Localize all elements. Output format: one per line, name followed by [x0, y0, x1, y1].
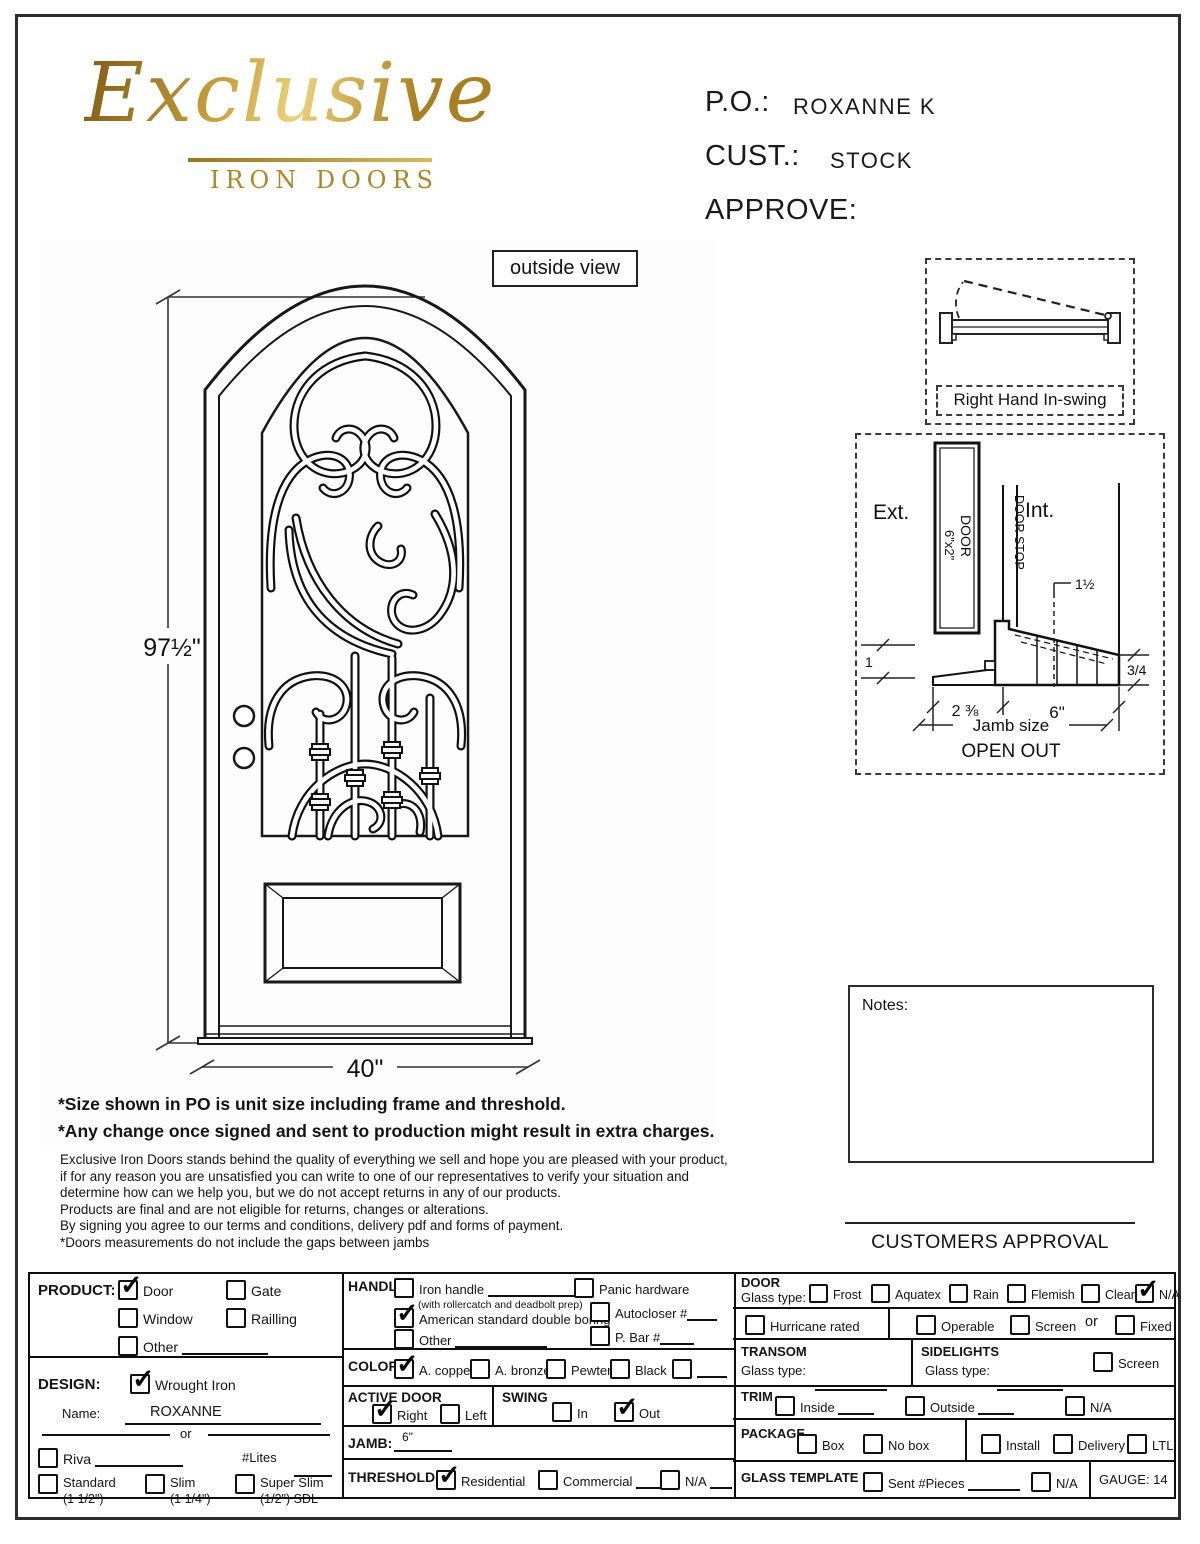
customers-approval-label: CUSTOMERS APPROVAL [845, 1231, 1135, 1254]
checkbox[interactable] [610, 1359, 630, 1379]
checkbox[interactable] [1081, 1284, 1100, 1303]
form-col-mid: HANDLE Iron handle (with rollercatch and… [342, 1274, 736, 1497]
handle-option-iron[interactable]: Iron handle [394, 1278, 584, 1298]
trim-inside-blank[interactable] [838, 1400, 874, 1415]
color-option-other[interactable] [672, 1359, 727, 1379]
active-swing-divider [492, 1387, 494, 1427]
open-out-label: OPEN OUT [961, 741, 1061, 762]
disclaimer-bold-1: *Size shown in PO is unit size including… [58, 1094, 566, 1115]
checkbox[interactable] [440, 1404, 460, 1424]
package-divider [965, 1420, 967, 1462]
raised-panel [265, 884, 460, 982]
jamb-label: JAMB: [348, 1435, 392, 1451]
profile-option-super-slim[interactable]: Super Slim(1/2") SDL [235, 1474, 324, 1506]
template-sent-option[interactable]: Sent #Pieces [863, 1472, 1020, 1492]
design-name-line[interactable] [125, 1410, 321, 1425]
checkbox[interactable] [672, 1359, 692, 1379]
checkbox[interactable] [660, 1470, 680, 1490]
hurricane-operable-section: Hurricane rated Operable Screen or Fixed [733, 1309, 1174, 1340]
product-section: PRODUCT: Door Gate Window Railling Other [30, 1274, 344, 1358]
glass-option-aquatex[interactable]: Aquatex [871, 1284, 941, 1303]
checkbox[interactable] [614, 1402, 634, 1422]
glass-type-label: Glass type: [741, 1290, 806, 1305]
glass-template-label: GLASS TEMPLATE [741, 1470, 858, 1485]
door-size-label: 6"x2" [942, 530, 957, 561]
logo-iron-doors: IRON DOORS [210, 166, 439, 194]
height-dimension [156, 290, 425, 1050]
threshold-section: THRESHOLD Residential Commercial N/A [342, 1460, 736, 1497]
checkbox[interactable] [38, 1448, 58, 1468]
trim-outside-blank[interactable] [978, 1400, 1014, 1415]
handle-option-panic[interactable]: Panic hardware [574, 1278, 689, 1298]
height-dim-text: 97½" [143, 634, 201, 662]
glass-option-clear[interactable]: Clear [1081, 1284, 1135, 1303]
ext-label: Ext. [873, 501, 909, 524]
design-section: DESIGN: Wrought Iron Name: ROXANNE or Ri… [30, 1358, 344, 1497]
handle-option-other[interactable]: Other [394, 1329, 547, 1349]
iron-handle-blank[interactable] [488, 1282, 584, 1297]
door-stop-label: DOOR STOP [1012, 495, 1026, 570]
checkbox[interactable] [470, 1359, 490, 1379]
checkbox[interactable] [394, 1278, 414, 1298]
product-option-door[interactable]: Door [118, 1280, 173, 1300]
form-col-right: DOOR Glass type: Frost Aquatex Rain Flem… [733, 1274, 1174, 1497]
trim-label: TRIM [741, 1389, 773, 1404]
logo-exclusive: Exclusive [84, 46, 496, 141]
trim-option-inside[interactable]: Inside [775, 1396, 874, 1416]
transom-sidelights-section: TRANSOM Glass type: SIDELIGHTS Glass typ… [733, 1340, 1174, 1387]
door-outer-frame [205, 286, 525, 1043]
door-drawing-area: outside view 97½" [40, 240, 716, 1145]
package-section: PACKAGE Box No box Install Delivery LTL [733, 1420, 1174, 1462]
checkbox[interactable] [130, 1374, 150, 1394]
threshold-na-blank[interactable] [710, 1474, 732, 1489]
door-glass-section: DOOR Glass type: Frost Aquatex Rain Flem… [733, 1274, 1174, 1309]
threshold-sill [198, 1026, 532, 1044]
glass-option-flemish[interactable]: Flemish [1007, 1284, 1075, 1303]
design-option-wrought-iron[interactable]: Wrought Iron [130, 1374, 236, 1394]
deadbolt-bore [234, 748, 254, 768]
jamb-section: JAMB: 6" [342, 1427, 736, 1460]
pieces-blank[interactable] [968, 1476, 1020, 1491]
color-option-copper[interactable]: A. copper [394, 1359, 475, 1379]
glass-option-na[interactable]: N/A [1135, 1284, 1180, 1303]
handle-option-pbar[interactable]: P. Bar # [590, 1326, 694, 1346]
pbar-blank[interactable] [660, 1330, 694, 1345]
template-na-option[interactable]: N/A [1031, 1472, 1078, 1492]
trim-section: TRIM Inside Outside N/A [733, 1387, 1174, 1420]
color-option-pewter[interactable]: Pewter [546, 1359, 611, 1379]
checkbox[interactable] [949, 1284, 968, 1303]
checkbox[interactable] [905, 1396, 925, 1416]
swing-diagram-box: Right Hand In-swing [925, 258, 1135, 425]
door-glass-label: DOOR [741, 1275, 780, 1290]
threshold-option-na[interactable]: N/A [660, 1470, 732, 1490]
threshold-option-commercial[interactable]: Commercial [538, 1470, 670, 1490]
checkbox[interactable] [916, 1315, 936, 1335]
dim-1: 1 [865, 654, 873, 670]
checkbox[interactable] [1115, 1315, 1135, 1335]
profile-option-standard[interactable]: Standard(1 1/2") [38, 1474, 116, 1506]
dim-1-half: 1½ [1075, 576, 1095, 592]
approve-label: APPROVE: [705, 194, 857, 227]
checkbox[interactable] [1093, 1352, 1113, 1372]
operable-option[interactable]: Operable [916, 1315, 994, 1335]
cust-label: CUST.: [705, 140, 800, 173]
door-elevation-drawing: 97½" [140, 278, 700, 1088]
scrollwork [268, 356, 461, 836]
screen-option[interactable]: Screen [1010, 1315, 1076, 1335]
jamb-diagram-box: Ext. Int. DOOR 6"x2" DOOR STOP [855, 433, 1165, 775]
design-label: DESIGN: [38, 1376, 101, 1393]
handle-option-american[interactable]: American standard double boring [394, 1308, 611, 1328]
dim-3-4: 3/4 [1127, 662, 1147, 678]
swing-option-in[interactable]: In [552, 1402, 588, 1422]
dim-6: 6" [1049, 703, 1065, 722]
checkbox[interactable] [590, 1326, 610, 1346]
trim-option-outside[interactable]: Outside [905, 1396, 1014, 1416]
hurricane-divider [888, 1309, 890, 1340]
int-label: Int. [1025, 499, 1054, 522]
handle-bore-top [234, 706, 254, 726]
other-blank[interactable] [182, 1340, 268, 1355]
checkbox[interactable] [118, 1336, 138, 1356]
threshold-label: THRESHOLD [348, 1469, 435, 1485]
trim-option-na[interactable]: N/A [1065, 1396, 1112, 1416]
checkbox[interactable] [745, 1315, 765, 1335]
logo-underline [188, 158, 432, 162]
profile-option-slim[interactable]: Slim(1 1/4") [145, 1474, 211, 1506]
handle-other-blank[interactable] [455, 1333, 547, 1348]
or-label: or [180, 1426, 192, 1441]
po-label: P.O.: [705, 86, 770, 119]
hurricane-option[interactable]: Hurricane rated [745, 1315, 860, 1335]
checkbox[interactable] [394, 1329, 414, 1349]
jamb-blank[interactable] [394, 1437, 452, 1452]
or-label: or [1085, 1314, 1098, 1330]
glass-template-section: GLASS TEMPLATE Sent #Pieces N/A GAUGE: 1… [733, 1462, 1174, 1497]
product-option-railing[interactable]: Railling [226, 1308, 297, 1328]
lites-label: #Lites [242, 1450, 277, 1465]
handle-section: HANDLE Iron handle (with rollercatch and… [342, 1274, 736, 1350]
checkbox[interactable] [394, 1308, 414, 1328]
swing-option-out[interactable]: Out [614, 1402, 660, 1422]
gauge-divider [1089, 1462, 1091, 1497]
checkbox[interactable] [372, 1404, 392, 1424]
checkbox[interactable] [1135, 1284, 1154, 1303]
sidelights-label: SIDELIGHTS [921, 1344, 999, 1359]
cust-value[interactable]: STOCK [830, 148, 913, 174]
disclaimer-paragraph: Exclusive Iron Doors stands behind the q… [60, 1152, 728, 1252]
checkbox[interactable] [863, 1472, 883, 1492]
approval-signature-line[interactable] [845, 1222, 1135, 1224]
gauge-value: GAUGE: 14 [1099, 1472, 1168, 1487]
checkbox[interactable] [118, 1308, 138, 1328]
checkbox[interactable] [797, 1434, 817, 1454]
color-label: COLOR [348, 1358, 399, 1374]
door-section-label: DOOR [958, 515, 974, 557]
product-option-other[interactable]: Other [118, 1336, 268, 1356]
package-label: PACKAGE [741, 1426, 805, 1441]
glass-option-frost[interactable]: Frost [809, 1284, 861, 1303]
riva-option[interactable]: Riva [38, 1448, 183, 1468]
color-option-bronze[interactable]: A. bronze [470, 1359, 551, 1379]
swing-plan-drawing [927, 260, 1129, 380]
active-swing-section: ACTIVE DOOR Right Left SWING In Out [342, 1387, 736, 1427]
color-option-black[interactable]: Black [610, 1359, 667, 1379]
checkbox[interactable] [981, 1434, 1001, 1454]
package-option-install[interactable]: Install [981, 1434, 1040, 1454]
po-value[interactable]: ROXANNE K [793, 94, 936, 120]
package-option-no-box[interactable]: No box [863, 1434, 929, 1454]
checkbox[interactable] [118, 1280, 138, 1300]
checkbox[interactable] [235, 1474, 255, 1494]
sidelights-screen-option[interactable]: Screen [1093, 1352, 1159, 1372]
product-label: PRODUCT: [38, 1282, 116, 1299]
checkbox[interactable] [1127, 1434, 1147, 1454]
package-option-ltl[interactable]: LTL [1127, 1434, 1173, 1454]
width-dim-text: 40" [347, 1055, 384, 1083]
checkbox[interactable] [226, 1308, 246, 1328]
checkbox[interactable] [1031, 1472, 1051, 1492]
sidelights-glass-label: Glass type: [925, 1363, 990, 1378]
active-option-left[interactable]: Left [440, 1404, 487, 1424]
package-option-delivery[interactable]: Delivery [1053, 1434, 1125, 1454]
checkbox[interactable] [145, 1474, 165, 1494]
checkbox[interactable] [394, 1359, 414, 1379]
threshold-option-residential[interactable]: Residential [436, 1470, 525, 1490]
checkbox[interactable] [590, 1302, 610, 1322]
checkbox[interactable] [1053, 1434, 1073, 1454]
order-options-form: PRODUCT: Door Gate Window Railling Other… [28, 1272, 1176, 1499]
notes-box[interactable]: Notes: [848, 985, 1154, 1163]
form-col-left: PRODUCT: Door Gate Window Railling Other… [30, 1274, 344, 1497]
checkbox[interactable] [574, 1278, 594, 1298]
riva-blank[interactable] [95, 1452, 183, 1467]
checkbox[interactable] [436, 1470, 456, 1490]
notes-label: Notes: [862, 997, 908, 1014]
autocloser-blank[interactable] [687, 1306, 717, 1321]
package-option-box[interactable]: Box [797, 1434, 844, 1454]
design-name-label: Name: [62, 1406, 100, 1421]
checkbox[interactable] [552, 1402, 572, 1422]
fixed-option[interactable]: Fixed [1115, 1315, 1172, 1335]
checkbox[interactable] [809, 1284, 828, 1303]
active-option-right[interactable]: Right [372, 1404, 427, 1424]
checkbox[interactable] [1007, 1284, 1026, 1303]
or-divider-right [208, 1434, 330, 1436]
color-other-blank[interactable] [697, 1363, 727, 1378]
transom-divider [911, 1340, 913, 1387]
checkbox[interactable] [538, 1470, 558, 1490]
jamb-size-label: Jamb size [973, 716, 1050, 735]
color-section: COLOR A. copper A. bronze Pewter Black [342, 1350, 736, 1387]
transom-label: TRANSOM [741, 1344, 807, 1359]
swing-label: SWING [502, 1390, 548, 1405]
order-sheet-page: Exclusive IRON DOORS P.O.: ROXANNE K CUS… [0, 0, 1200, 1544]
handle-option-autocloser[interactable]: Autocloser # [590, 1302, 717, 1322]
product-option-window[interactable]: Window [118, 1308, 193, 1328]
checkbox[interactable] [775, 1396, 795, 1416]
checkbox[interactable] [871, 1284, 890, 1303]
glass-option-rain[interactable]: Rain [949, 1284, 999, 1303]
checkbox[interactable] [863, 1434, 883, 1454]
product-option-gate[interactable]: Gate [226, 1280, 281, 1300]
or-divider-left [42, 1434, 170, 1436]
checkbox[interactable] [1065, 1396, 1085, 1416]
transom-glass-label: Glass type: [741, 1363, 806, 1378]
disclaimer-bold-2: *Any change once signed and sent to prod… [58, 1121, 714, 1142]
jamb-section-drawing: Ext. Int. DOOR 6"x2" DOOR STOP [857, 435, 1159, 769]
checkbox[interactable] [226, 1280, 246, 1300]
checkbox[interactable] [38, 1474, 58, 1494]
swing-label: Right Hand In-swing [936, 385, 1124, 416]
checkbox[interactable] [546, 1359, 566, 1379]
checkbox[interactable] [1010, 1315, 1030, 1335]
